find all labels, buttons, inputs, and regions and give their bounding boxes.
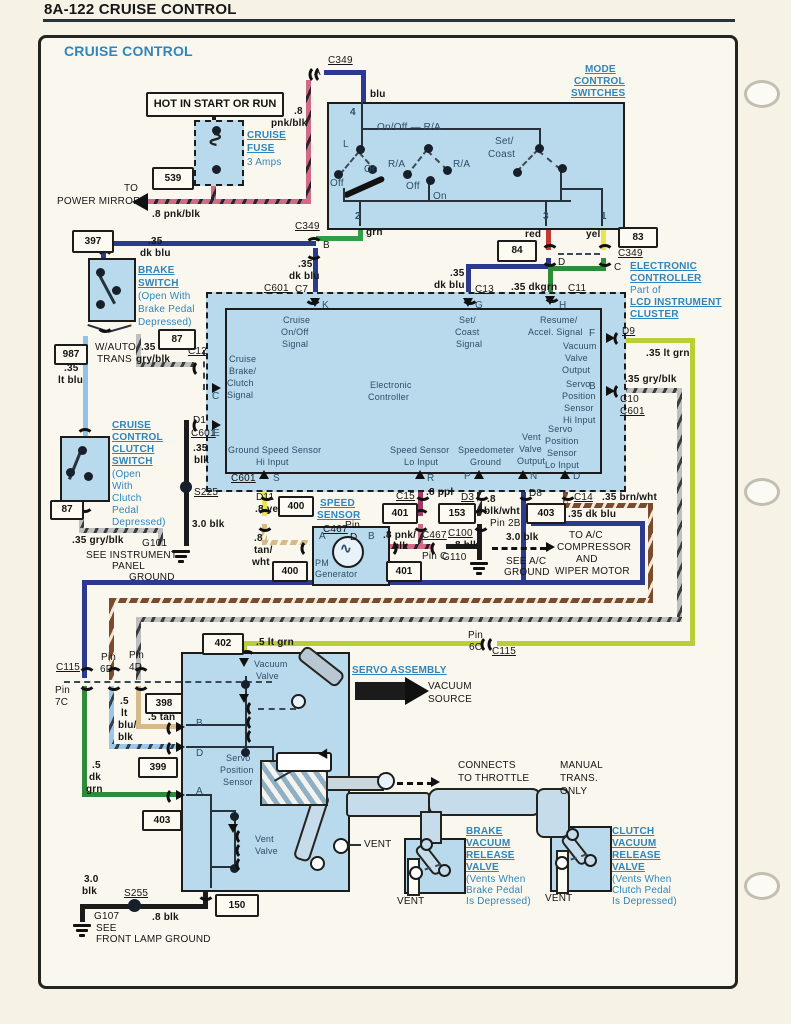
wire-blk: [80, 904, 208, 909]
signal-label: Valve: [565, 353, 588, 363]
clutch-switch-note: (Open: [112, 469, 141, 480]
signal-label: Cruise: [229, 354, 256, 364]
servo-vent-port: [333, 838, 349, 854]
l-label: L: [343, 139, 349, 150]
ecu-heading: Part of: [630, 285, 661, 296]
wire-label: blk: [393, 541, 408, 552]
manual-trans-label: TRANS.: [560, 773, 598, 784]
servo-label: Valve: [256, 671, 279, 681]
dest-label: AND: [576, 554, 598, 565]
pin-r-arrow: [415, 470, 425, 479]
pin-n-arrow: [518, 470, 528, 479]
pin-label: Pin: [55, 685, 70, 696]
wire-brnwht: [563, 503, 653, 508]
servo-label: Servo: [226, 753, 251, 763]
splice-s255: [128, 899, 141, 912]
c349b-label: C349: [295, 221, 320, 232]
signal-label: Brake/: [229, 366, 256, 376]
hot-in-start-box: HOT IN START OR RUN: [146, 92, 284, 117]
clutch-switch-conn: [76, 428, 94, 445]
servo-pin-a: A: [196, 786, 203, 797]
wire-label: grn: [86, 784, 103, 795]
servo-label: Valve: [255, 846, 278, 856]
onoff-ra-label: On/Off — R/A: [377, 122, 441, 133]
d-line: [272, 746, 274, 760]
wire-label: .35: [193, 443, 208, 454]
brake-switch-note: (Open With: [138, 291, 191, 302]
wire-label: blk: [118, 732, 133, 743]
wire-label: pnk/blk: [271, 118, 307, 129]
clutch-switch-heading: SWITCH: [112, 456, 153, 467]
vacuum-source-label: VACUUM: [428, 681, 472, 692]
connector-dash: [558, 253, 600, 255]
c100-label: C100: [448, 528, 473, 539]
g107-label: G107: [94, 911, 119, 922]
wire-label: lt: [121, 708, 128, 719]
throttle-dash: [397, 782, 433, 785]
c115-label: C115: [56, 662, 80, 673]
vent-label: VENT: [364, 839, 391, 850]
clutch-valve-heading: VACUUM: [612, 838, 656, 849]
ref-398: 398: [145, 693, 183, 714]
signal-label: Vacuum: [563, 341, 597, 351]
wire-gryblk: [677, 388, 682, 622]
ref-403b: 403: [142, 810, 182, 831]
vent-label: VENT: [545, 893, 572, 904]
switch-pivot: [356, 145, 365, 154]
pin-label: Pin: [468, 630, 483, 641]
signal-label: Lo Input: [404, 457, 438, 467]
signal-label: Position: [562, 391, 596, 401]
ref-400b: 400: [272, 561, 308, 582]
wire-label: blu: [370, 89, 386, 100]
ecu-name: Electronic: [370, 380, 412, 390]
clutch-switch-note: Depressed): [112, 517, 166, 528]
brake-valve-note: Is Depressed): [466, 896, 531, 907]
vent-leader: [347, 844, 361, 846]
switch-pivot: [424, 144, 433, 153]
dest-label: COMPRESSOR: [557, 542, 631, 553]
s225-label: S225: [194, 487, 218, 498]
c601-label: C601: [191, 428, 216, 439]
off-label: Off: [330, 178, 344, 189]
on-label: On: [433, 191, 447, 202]
g101-label: G101: [142, 538, 167, 549]
vent-port: [409, 866, 423, 880]
pm-a-connector: [301, 540, 318, 558]
see-ac-dash: [492, 547, 546, 550]
signal-label: On/Off: [281, 327, 309, 337]
c467-label: C467: [323, 524, 348, 535]
pin-label: D: [350, 532, 357, 543]
ref-87b: 87: [50, 500, 84, 520]
wire-label: 3.0 blk: [506, 532, 539, 543]
wire-dkblu: [466, 264, 551, 269]
c10-label: C10: [620, 394, 639, 405]
on-label: On: [364, 164, 378, 175]
wire-label: .35: [148, 236, 163, 247]
signal-label: Accel. Signal: [528, 327, 583, 337]
signal-label: Resume/: [540, 315, 577, 325]
rod-end: [377, 772, 395, 790]
wire-label: .8 pnk/blk: [152, 209, 200, 220]
signal-label: Signal: [282, 339, 308, 349]
wire-label: 3.0: [84, 874, 99, 885]
wire-label: blk/wht: [484, 506, 520, 517]
c349c-label: C349: [618, 248, 643, 259]
vacuum-source-label: SOURCE: [428, 694, 472, 705]
g110-ground-icon: [468, 560, 490, 575]
switch-contact: [403, 170, 412, 179]
signal-label: Speedometer: [458, 445, 514, 455]
pin-f: F: [589, 328, 595, 339]
pin-d-label: D: [558, 257, 565, 268]
wire-label: .35 lt grn: [646, 348, 690, 359]
switch-contact: [96, 300, 105, 309]
pin-label: Pin: [345, 520, 360, 531]
wire-blk: [80, 904, 85, 922]
pm-label: PM: [315, 558, 329, 568]
dest-power-mirrors: POWER MIRRORS: [57, 196, 147, 207]
throttle-label: TO THROTTLE: [458, 773, 529, 784]
servo-label: Position: [220, 765, 254, 775]
pin-a-label: A: [314, 67, 321, 78]
switch-contact: [96, 268, 105, 277]
ground-note: SEE A/C: [506, 556, 546, 567]
wire-label: lt blu: [58, 375, 83, 386]
throttle-rod: [322, 776, 384, 791]
switch-contact: [443, 166, 452, 175]
pin-label: 7C: [55, 697, 68, 708]
valve-diode: [239, 694, 249, 703]
c601-label: C601: [231, 473, 256, 484]
wire-label: .5: [120, 696, 129, 707]
switch-line: [560, 168, 562, 202]
wire-label: dk: [89, 772, 101, 783]
ref-401a: 401: [382, 503, 418, 524]
pin-d: D: [573, 471, 580, 482]
clutch-valve-note: Clutch Pedal: [612, 885, 671, 896]
pin-label: 6C: [469, 642, 482, 653]
pin-label: Pin: [101, 652, 116, 663]
brake-valve-heading: BRAKE: [466, 826, 503, 837]
wire-label: .35: [450, 268, 465, 279]
brake-valve-note: Brake Pedal: [466, 885, 523, 896]
brake-switch-note: Brake Pedal: [138, 304, 195, 315]
ref-400a: 400: [278, 496, 314, 517]
set-label: Set/: [495, 136, 514, 147]
servo-pin-d: D: [196, 748, 203, 759]
signal-label: Lo Input: [545, 460, 579, 470]
wire-label: .35 dkgrn: [511, 282, 557, 293]
header-rule: [43, 19, 735, 22]
ra-label: R/A: [453, 159, 470, 170]
ref-539: 539: [152, 167, 194, 190]
c13-label: C13: [475, 284, 494, 295]
signal-label: Ground: [470, 457, 501, 467]
ref-150: 150: [215, 894, 259, 917]
wire-blu: [361, 70, 366, 104]
wire-label: .35 gry/blk: [625, 374, 677, 385]
wire-dkblu: [82, 580, 87, 678]
signal-label: Position: [545, 436, 579, 446]
fuse-terminal: [212, 165, 221, 174]
clutch-valve-note: Is Depressed): [612, 896, 677, 907]
valve-node: [241, 680, 250, 689]
g110-label: G110: [442, 552, 467, 563]
brake-switch-heading: SWITCH: [138, 278, 179, 289]
see-ac-arrow: [546, 542, 555, 552]
binder-hole: [744, 872, 780, 900]
pin-2: 2: [355, 211, 361, 222]
ref-153: 153: [438, 503, 476, 524]
page: 8A-122 CRUISE CONTROL CRUISE CONTROL: [0, 0, 791, 1024]
ref-83: 83: [618, 227, 658, 248]
wire-label: .8 blk: [452, 540, 479, 551]
clutch-switch-heading: CRUISE: [112, 420, 151, 431]
switch-contact: [513, 168, 522, 177]
wire-gryblk: [79, 528, 163, 533]
mode-heading: CONTROL: [574, 76, 625, 87]
binder-hole: [744, 80, 780, 108]
switch-contact: [84, 472, 93, 481]
ecu-heading: CLUSTER: [630, 309, 679, 320]
valve-dash: [258, 708, 296, 710]
switch-contact: [112, 286, 121, 295]
ground-note: SEE: [96, 923, 117, 934]
ref-399: 399: [138, 757, 178, 778]
switch-pivot: [535, 144, 544, 153]
wire-label: wht: [252, 557, 270, 568]
c601-label: C601: [264, 283, 289, 294]
signal-label: Sensor: [547, 448, 577, 458]
wire-dkblu: [110, 241, 316, 246]
pm-pin-a: A: [319, 531, 326, 542]
signal-label: Hi Input: [256, 457, 289, 467]
coast-label: Coast: [488, 149, 515, 160]
wire-label: yel: [586, 229, 601, 240]
wire-label: blk: [82, 886, 97, 897]
lever-pin: [438, 864, 451, 877]
c12-connector: [193, 360, 210, 378]
throttle-arrow: [431, 777, 440, 787]
pin-r: R: [427, 473, 434, 484]
ecu-heading: LCD INSTRUMENT: [630, 297, 722, 308]
fuse-label: FUSE: [247, 143, 274, 154]
c349d-connector: [541, 244, 559, 261]
s255-label: S255: [124, 888, 148, 899]
wire-gryblk: [136, 617, 682, 622]
wire-pnkblk: [148, 199, 311, 204]
wire-label: .8: [294, 106, 303, 117]
wire-label: .5: [92, 760, 101, 771]
c349c-connector: [596, 244, 614, 261]
ref-84: 84: [497, 240, 537, 262]
wire-dkgrn: [82, 686, 87, 796]
c601-label: C601: [620, 406, 645, 417]
fuse-label: CRUISE: [247, 130, 286, 141]
wire-blk: [184, 490, 189, 546]
wire-dkblu: [640, 521, 645, 585]
pin-label: Pin: [129, 650, 144, 661]
signal-label: Signal: [456, 339, 482, 349]
servo-heading: SERVO ASSEMBLY: [352, 665, 447, 676]
servo-d-arrow: [176, 742, 185, 752]
switch-contact: [66, 468, 75, 477]
wire-label: grn: [366, 227, 383, 238]
c7-label: C7: [295, 284, 308, 295]
servo-label: Sensor: [223, 777, 253, 787]
ref-402: 402: [202, 633, 244, 655]
c349b-connector: [305, 243, 323, 260]
wire-label: .8: [487, 494, 496, 505]
servo-top-arrow: [239, 658, 249, 667]
pin-c-label: C: [614, 262, 621, 273]
brake-valve-note: (Vents When: [466, 874, 525, 885]
ref-403a: 403: [526, 503, 566, 524]
wire-label: dk blu: [434, 280, 465, 291]
pin-b-label: B: [323, 240, 330, 251]
wire-label: blk: [194, 455, 209, 466]
clutch-switch-note: Clutch: [112, 493, 142, 504]
wire-label: .35 dk blu: [568, 509, 616, 520]
c14-label: C14: [574, 492, 593, 503]
valve-coil: [247, 728, 264, 746]
mode-heading: MODE: [585, 64, 616, 75]
pin-3: 3: [543, 211, 549, 222]
wire-brnwht: [109, 598, 653, 603]
pin-s-arrow: [259, 470, 269, 479]
ref-87: 87: [158, 329, 196, 350]
dest-label: WIPER MOTOR: [555, 566, 630, 577]
pin-n: N: [530, 471, 537, 482]
wire-label: tan/: [254, 545, 273, 556]
signal-label: Valve: [519, 444, 542, 454]
wire-label: .8 blk: [152, 912, 179, 923]
wire-label: .35: [141, 342, 156, 353]
splice-s225: [180, 481, 192, 493]
switch-contact: [78, 446, 87, 455]
pin-k-arrow: [310, 298, 320, 307]
throttle-label: CONNECTS: [458, 760, 516, 771]
signal-label: Servo: [548, 424, 573, 434]
pin-p-arrow: [474, 470, 484, 479]
wire-label: .5 lt grn: [256, 637, 294, 648]
d1-label: D1: [193, 415, 206, 426]
vacuum-source-arrow: [405, 677, 429, 705]
vacuum-source-bar: [355, 682, 405, 700]
brake-switch-note: Depressed): [138, 317, 192, 328]
brake-switch-conn: [96, 316, 114, 333]
lever-pin: [420, 838, 433, 851]
ground-note: PANEL: [112, 561, 145, 572]
wire-pnkblk: [306, 80, 311, 204]
wire-label: dk blu: [289, 271, 320, 282]
signal-label: Output: [562, 365, 590, 375]
wire-label: red: [525, 229, 541, 240]
signal-label: Servo: [566, 379, 591, 389]
servo-label: Vacuum: [254, 659, 288, 669]
servo-label: Vent: [255, 834, 274, 844]
sine-icon: ∿: [340, 543, 352, 554]
clutch-switch-heading: CONTROL: [112, 432, 163, 443]
dest-to: TO: [124, 183, 138, 194]
signal-label: Cruise: [283, 315, 310, 325]
switch-contact: [426, 176, 435, 185]
ref-987: 987: [54, 344, 88, 365]
switch-contact: [558, 164, 567, 173]
signal-label: Output: [517, 456, 545, 466]
pm-label: Generator: [315, 569, 357, 579]
a-line: [210, 794, 212, 888]
clutch-valve-note: (Vents When: [612, 874, 671, 885]
wire-label: .8: [254, 533, 263, 544]
brake-valve-heading: VALVE: [466, 862, 499, 873]
vent-port: [555, 856, 569, 870]
signal-label: Clutch: [227, 378, 254, 388]
speed-sensor-heading: SPEED: [320, 498, 355, 509]
wire-ltblublk: [109, 686, 114, 746]
wire-label: .35 gry/blk: [72, 535, 124, 546]
pin-h-arrow: [545, 296, 555, 305]
servo-b-arrow: [176, 722, 185, 732]
ground-note: FRONT LAMP GROUND: [96, 934, 211, 945]
pin-k: K: [322, 300, 329, 311]
switch-bus: [343, 200, 571, 202]
signal-label: Sensor: [564, 403, 594, 413]
off-label: Off: [406, 181, 420, 192]
diagram-title: CRUISE CONTROL: [64, 46, 193, 57]
pin-g-arrow: [463, 298, 473, 307]
wire-label: .35: [298, 259, 313, 270]
wire-label: blu/: [118, 720, 137, 731]
lever-pin: [584, 854, 597, 867]
wire-label: dk blu: [140, 248, 171, 259]
c11-label: C11: [568, 283, 586, 294]
fuse-rating: 3 Amps: [247, 157, 282, 168]
signal-label: Signal: [227, 390, 253, 400]
brake-valve-heading: RELEASE: [466, 850, 515, 861]
vacuum-pipe: [428, 788, 542, 816]
clutch-switch-note: With: [112, 481, 133, 492]
servo-port: [310, 856, 325, 871]
signal-label: Ground Speed Sensor: [228, 445, 321, 455]
d8-label: D8: [529, 488, 542, 499]
pm-pin-b: B: [368, 531, 375, 542]
wire-dkgrn: [548, 266, 606, 271]
clutch-valve-heading: CLUTCH: [612, 826, 654, 837]
servo-arm-joint: [291, 694, 306, 709]
ground-note: GROUND: [504, 567, 550, 578]
mode-heading: SWITCHES: [571, 88, 625, 99]
g107-ground-icon: [71, 922, 93, 937]
switch-line: [361, 102, 363, 148]
manual-trans-label: ONLY: [560, 786, 587, 797]
servo-pin-b: B: [196, 718, 203, 729]
ref-401b: 401: [386, 561, 422, 582]
fuse-element: ∿: [209, 131, 220, 148]
wire-label: 3.0 blk: [192, 519, 225, 530]
wauto-label: W/AUTO: [95, 342, 136, 353]
pin-g: G: [475, 300, 483, 311]
pin-label: 6D: [100, 664, 113, 675]
servo-bottom-connector: [197, 884, 215, 901]
servo-a-arrow: [176, 790, 185, 800]
clutch-switch-heading: CLUTCH: [112, 444, 154, 455]
dest-label: TO A/C: [569, 530, 603, 541]
vent-node: [230, 812, 239, 821]
wire-label: gry/blk: [136, 354, 170, 365]
